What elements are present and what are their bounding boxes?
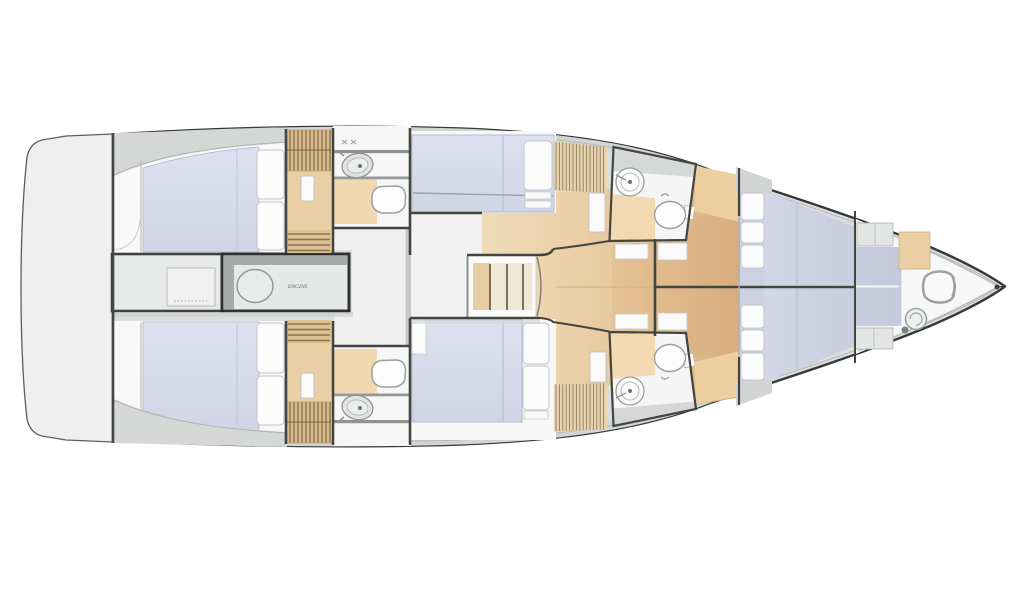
svg-text:ENGINE: ENGINE xyxy=(287,284,309,290)
